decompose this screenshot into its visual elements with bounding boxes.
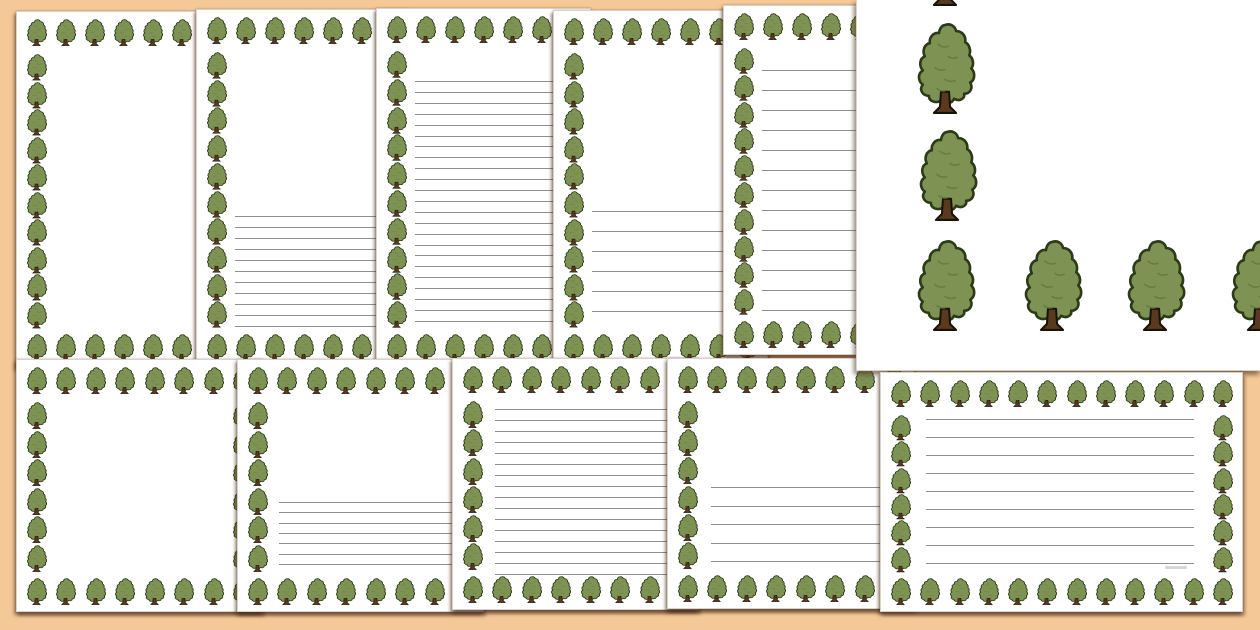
tree-icon bbox=[386, 246, 407, 274]
tree-icon bbox=[890, 441, 911, 467]
tree-icon bbox=[677, 366, 698, 394]
tree-icon bbox=[563, 81, 584, 109]
tree-icon bbox=[276, 578, 297, 606]
tree-icon bbox=[351, 334, 372, 362]
tree-icon bbox=[386, 218, 407, 246]
writing-line bbox=[279, 554, 463, 555]
writing-line bbox=[711, 524, 893, 525]
tree-icon bbox=[563, 246, 584, 274]
tree-icon bbox=[563, 301, 584, 329]
tree-icon bbox=[26, 192, 47, 220]
tree-icon bbox=[55, 334, 76, 362]
tree-icon bbox=[206, 301, 227, 329]
tree-icon bbox=[491, 366, 512, 394]
writing-line bbox=[711, 561, 893, 562]
tree-icon bbox=[322, 334, 343, 362]
tree-icon bbox=[521, 366, 542, 394]
tree-icon bbox=[1183, 578, 1204, 606]
tree-icon bbox=[563, 18, 584, 46]
tree-icon bbox=[55, 578, 76, 606]
writing-line bbox=[235, 326, 392, 327]
tree-icon bbox=[949, 380, 970, 408]
tree-icon bbox=[592, 18, 613, 46]
tree-icon bbox=[85, 578, 106, 606]
tree-icon bbox=[762, 13, 783, 41]
tree-icon bbox=[247, 431, 268, 459]
tree-icon bbox=[365, 578, 386, 606]
tree-icon bbox=[1212, 468, 1233, 494]
tree-icon bbox=[26, 19, 47, 47]
tree-icon bbox=[677, 514, 698, 542]
tree-icon bbox=[706, 366, 727, 394]
tree-icon bbox=[55, 367, 76, 395]
writing-line bbox=[279, 512, 463, 513]
tree-icon bbox=[1124, 578, 1145, 606]
writing-line bbox=[926, 419, 1194, 420]
tree-icon bbox=[677, 542, 698, 570]
tree-icon bbox=[1153, 380, 1174, 408]
tree-icon bbox=[386, 51, 407, 79]
writing-line bbox=[495, 475, 678, 476]
tree-icon bbox=[55, 19, 76, 47]
tree-icon bbox=[1212, 415, 1233, 441]
tree-icon bbox=[824, 366, 845, 394]
tree-icon bbox=[114, 367, 135, 395]
tree-icon bbox=[293, 17, 314, 45]
tree-icon bbox=[473, 16, 494, 44]
tree-icon bbox=[563, 53, 584, 81]
tree-icon bbox=[1212, 441, 1233, 467]
tree-icon bbox=[26, 247, 47, 275]
tree-icon bbox=[733, 236, 754, 263]
tree-icon bbox=[306, 578, 327, 606]
writing-line bbox=[415, 212, 572, 213]
writing-line bbox=[415, 168, 572, 169]
writing-line bbox=[415, 310, 572, 311]
tree-icon bbox=[114, 578, 135, 606]
writing-line bbox=[415, 190, 572, 191]
writing-line bbox=[415, 223, 572, 224]
tree-icon bbox=[1095, 380, 1116, 408]
tree-icon bbox=[550, 366, 571, 394]
border-left-tree-column bbox=[26, 54, 47, 329]
writing-line bbox=[235, 293, 392, 294]
tree-icon bbox=[580, 366, 601, 394]
tree-icon bbox=[424, 578, 445, 606]
tree-icon bbox=[462, 429, 483, 457]
border-left-tree-column bbox=[26, 402, 47, 573]
tree-icon bbox=[679, 18, 700, 46]
tree-icon bbox=[235, 334, 256, 362]
tree-icon bbox=[733, 102, 754, 129]
tree-icon bbox=[26, 334, 47, 362]
tree-icon bbox=[142, 334, 163, 362]
tree-icon bbox=[733, 48, 754, 75]
tree-icon bbox=[173, 367, 194, 395]
tree-icon bbox=[890, 520, 911, 546]
tree-icon bbox=[142, 19, 163, 47]
tree-icon bbox=[1212, 520, 1233, 546]
tree-icon bbox=[1036, 578, 1057, 606]
tree-icon bbox=[890, 415, 911, 441]
tree-icon bbox=[206, 274, 227, 302]
tree-icon bbox=[1066, 380, 1087, 408]
writing-line bbox=[415, 299, 572, 300]
writing-line bbox=[415, 81, 572, 82]
tree-icon bbox=[203, 578, 224, 606]
tree-icon bbox=[890, 380, 911, 408]
tree-icon bbox=[677, 429, 698, 457]
tree-icon bbox=[26, 109, 47, 137]
tree-icon bbox=[1212, 547, 1233, 573]
tree-icon bbox=[26, 302, 47, 330]
tree-icon bbox=[949, 578, 970, 606]
writing-line bbox=[711, 506, 893, 507]
tree-icon bbox=[386, 273, 407, 301]
tree-icon bbox=[276, 367, 297, 395]
tree-icon bbox=[247, 459, 268, 487]
tree-icon bbox=[462, 458, 483, 486]
border-right-tree-column bbox=[1212, 415, 1233, 573]
border-left-tree-column bbox=[462, 401, 483, 571]
border-top-tree-row bbox=[26, 19, 221, 47]
writing-line bbox=[235, 249, 392, 250]
tree-icon bbox=[206, 334, 227, 362]
tree-icon bbox=[394, 578, 415, 606]
tree-icon bbox=[1183, 380, 1204, 408]
tree-icon bbox=[235, 17, 256, 45]
tree-icon bbox=[415, 16, 436, 44]
tree-icon bbox=[791, 13, 812, 41]
tree-icon bbox=[1066, 578, 1087, 606]
tree-icon bbox=[914, 0, 976, 10]
tree-icon bbox=[386, 190, 407, 218]
border-top-tree-row bbox=[462, 366, 689, 394]
writing-line bbox=[495, 541, 678, 542]
border-left-tree-column bbox=[386, 51, 407, 329]
tree-icon bbox=[85, 367, 106, 395]
tree-icon bbox=[247, 488, 268, 516]
writing-line bbox=[235, 315, 392, 316]
tree-icon bbox=[26, 578, 47, 606]
writing-line bbox=[415, 92, 572, 93]
writing-line bbox=[495, 453, 678, 454]
page-card-bottom-1-blank bbox=[16, 359, 263, 612]
writing-line bbox=[711, 487, 893, 488]
tree-icon bbox=[293, 334, 314, 362]
writing-line bbox=[415, 103, 572, 104]
writing-line bbox=[926, 545, 1194, 546]
writing-lines bbox=[279, 502, 463, 574]
tree-icon bbox=[733, 262, 754, 289]
writing-line bbox=[279, 543, 463, 544]
border-bottom-tree-row bbox=[890, 578, 1233, 606]
tree-icon bbox=[206, 107, 227, 135]
tree-icon bbox=[206, 163, 227, 191]
page-card-bottom-4-half-lined-wide bbox=[667, 358, 914, 609]
writing-line bbox=[415, 157, 572, 158]
border-left-tree-column bbox=[677, 401, 698, 570]
tree-icon bbox=[335, 578, 356, 606]
large-tree-icon-wrap bbox=[1124, 239, 1186, 335]
tree-icon bbox=[26, 54, 47, 82]
tree-icon bbox=[171, 19, 192, 47]
tree-icon bbox=[424, 367, 445, 395]
tree-icon bbox=[394, 367, 415, 395]
page-card-bottom-2-half-lined-narrow bbox=[237, 359, 484, 612]
writing-line bbox=[711, 543, 893, 544]
tree-icon bbox=[203, 367, 224, 395]
writing-lines bbox=[235, 216, 392, 337]
border-bottom-tree-row bbox=[26, 334, 221, 362]
border-bottom-tree-row bbox=[206, 334, 401, 362]
tree-icon bbox=[639, 366, 660, 394]
tree-icon bbox=[890, 468, 911, 494]
tree-icon bbox=[890, 547, 911, 573]
writing-line bbox=[495, 530, 678, 531]
tree-icon bbox=[733, 209, 754, 236]
tree-icon bbox=[765, 366, 786, 394]
tree-icon bbox=[677, 575, 698, 603]
tree-icon bbox=[1212, 578, 1233, 606]
tree-icon bbox=[351, 17, 372, 45]
writing-line bbox=[279, 564, 463, 565]
tree-icon bbox=[563, 191, 584, 219]
tree-icon bbox=[1212, 494, 1233, 520]
writing-lines bbox=[926, 419, 1194, 581]
tree-icon bbox=[335, 367, 356, 395]
writing-line bbox=[235, 260, 392, 261]
tree-icon bbox=[1036, 380, 1057, 408]
border-left-tree-column bbox=[733, 48, 754, 316]
tree-icon bbox=[733, 289, 754, 316]
page-card-bottom-5-fully-lined-wide bbox=[880, 372, 1243, 612]
tree-icon bbox=[84, 19, 105, 47]
tree-icon bbox=[444, 16, 465, 44]
tree-icon bbox=[26, 137, 47, 165]
writing-line bbox=[415, 136, 572, 137]
tree-icon bbox=[677, 401, 698, 429]
tree-icon bbox=[247, 367, 268, 395]
tree-icon bbox=[144, 367, 165, 395]
writing-line bbox=[279, 533, 463, 534]
writing-line bbox=[495, 431, 678, 432]
tree-icon bbox=[914, 239, 976, 335]
tree-icon bbox=[386, 79, 407, 107]
tree-icon bbox=[386, 107, 407, 135]
tree-icon bbox=[1007, 578, 1028, 606]
tree-icon bbox=[462, 486, 483, 514]
tree-icon bbox=[795, 366, 816, 394]
writing-line bbox=[926, 491, 1194, 492]
writing-line bbox=[235, 227, 392, 228]
tree-icon bbox=[462, 366, 483, 394]
tree-icon bbox=[677, 486, 698, 514]
tree-icon bbox=[386, 162, 407, 190]
tree-icon bbox=[919, 380, 940, 408]
tree-icon bbox=[531, 16, 552, 44]
writing-line bbox=[415, 255, 572, 256]
tree-icon bbox=[322, 17, 343, 45]
large-tree-icon-wrap bbox=[1228, 239, 1260, 335]
writing-line bbox=[495, 486, 678, 487]
writing-line bbox=[415, 234, 572, 235]
large-tree-icon-wrap bbox=[914, 239, 976, 335]
writing-line bbox=[415, 201, 572, 202]
tree-icon bbox=[1124, 380, 1145, 408]
tree-icon bbox=[919, 578, 940, 606]
writing-line bbox=[415, 288, 572, 289]
tree-icon bbox=[386, 334, 407, 362]
writing-line bbox=[235, 282, 392, 283]
faint-watermark bbox=[1165, 566, 1187, 569]
tree-icon bbox=[916, 129, 978, 225]
tree-icon bbox=[1124, 239, 1186, 335]
writing-line bbox=[926, 563, 1194, 564]
tree-icon bbox=[563, 274, 584, 302]
tree-icon bbox=[113, 19, 134, 47]
writing-line bbox=[279, 502, 463, 503]
tree-icon bbox=[386, 16, 407, 44]
writing-line bbox=[495, 420, 678, 421]
writing-line bbox=[415, 266, 572, 267]
tree-icon bbox=[563, 108, 584, 136]
border-closeup-panel bbox=[856, 0, 1260, 371]
writing-line bbox=[415, 277, 572, 278]
writing-line bbox=[495, 497, 678, 498]
tree-icon bbox=[247, 516, 268, 544]
tree-icon bbox=[890, 494, 911, 520]
tree-icon bbox=[26, 367, 47, 395]
writing-line bbox=[415, 125, 572, 126]
tree-icon bbox=[247, 545, 268, 573]
tree-icon bbox=[247, 578, 268, 606]
writing-line bbox=[415, 245, 572, 246]
tree-icon bbox=[173, 578, 194, 606]
border-left-tree-column bbox=[563, 53, 584, 329]
border-top-tree-row bbox=[206, 17, 401, 45]
writing-line bbox=[235, 304, 392, 305]
tree-icon bbox=[26, 545, 47, 573]
tree-icon bbox=[890, 578, 911, 606]
tree-icon bbox=[26, 516, 47, 544]
writing-line bbox=[926, 527, 1194, 528]
writing-line bbox=[495, 552, 678, 553]
large-tree-icon-wrap bbox=[1021, 239, 1083, 335]
tree-icon bbox=[26, 274, 47, 302]
tree-icon bbox=[365, 367, 386, 395]
large-tree-icon-wrap bbox=[916, 129, 978, 225]
tree-icon bbox=[144, 578, 165, 606]
tree-icon bbox=[733, 75, 754, 102]
tree-icon bbox=[84, 334, 105, 362]
writing-lines bbox=[495, 409, 678, 585]
tree-icon bbox=[415, 334, 436, 362]
border-top-tree-row bbox=[890, 380, 1233, 408]
writing-line bbox=[235, 271, 392, 272]
tree-icon bbox=[733, 321, 754, 349]
page-card-bottom-3-fully-lined-narrow bbox=[452, 358, 699, 610]
tree-icon bbox=[677, 457, 698, 485]
writing-line bbox=[495, 574, 678, 575]
tree-icon bbox=[1212, 380, 1233, 408]
writing-line bbox=[415, 321, 572, 322]
tree-icon bbox=[26, 164, 47, 192]
writing-line bbox=[495, 442, 678, 443]
writing-line bbox=[415, 146, 572, 147]
tree-icon bbox=[264, 17, 285, 45]
tree-icon bbox=[26, 82, 47, 110]
tree-icon bbox=[733, 182, 754, 209]
tree-icon bbox=[650, 18, 671, 46]
writing-line bbox=[495, 409, 678, 410]
writing-line bbox=[926, 473, 1194, 474]
border-left-tree-column bbox=[206, 52, 227, 329]
tree-icon bbox=[26, 402, 47, 430]
tree-icon bbox=[609, 366, 630, 394]
large-tree-icon-wrap bbox=[914, 22, 976, 118]
tree-icon bbox=[462, 515, 483, 543]
tree-icon bbox=[1228, 239, 1260, 335]
writing-line bbox=[495, 464, 678, 465]
tree-icon bbox=[247, 402, 268, 430]
tree-icon bbox=[1021, 239, 1083, 335]
tree-icon bbox=[386, 301, 407, 329]
writing-line bbox=[926, 437, 1194, 438]
writing-line bbox=[926, 455, 1194, 456]
tree-icon bbox=[171, 334, 192, 362]
tree-icon bbox=[563, 163, 584, 191]
writing-line bbox=[235, 238, 392, 239]
tree-icon bbox=[733, 128, 754, 155]
tree-icon bbox=[733, 155, 754, 182]
border-top-tree-row bbox=[26, 367, 253, 395]
tree-icon bbox=[206, 135, 227, 163]
page-borders-preview bbox=[0, 0, 1260, 630]
writing-line bbox=[415, 114, 572, 115]
tree-icon bbox=[26, 488, 47, 516]
tree-icon bbox=[736, 366, 757, 394]
writing-line bbox=[495, 519, 678, 520]
tree-icon bbox=[978, 380, 999, 408]
tree-icon bbox=[206, 218, 227, 246]
tree-icon bbox=[563, 219, 584, 247]
tree-icon bbox=[1095, 578, 1116, 606]
tree-icon bbox=[206, 17, 227, 45]
tree-icon bbox=[462, 543, 483, 571]
writing-line bbox=[495, 508, 678, 509]
border-top-tree-row bbox=[386, 16, 581, 44]
tree-icon bbox=[26, 431, 47, 459]
tree-icon bbox=[563, 136, 584, 164]
tree-icon bbox=[462, 576, 483, 604]
border-top-tree-row bbox=[247, 367, 474, 395]
border-left-tree-column bbox=[247, 402, 268, 573]
tree-icon bbox=[113, 334, 134, 362]
writing-line bbox=[926, 509, 1194, 510]
tree-icon bbox=[206, 80, 227, 108]
tree-icon bbox=[206, 52, 227, 80]
border-bottom-tree-row bbox=[247, 578, 474, 606]
tree-icon bbox=[914, 22, 976, 118]
tree-icon bbox=[264, 334, 285, 362]
large-tree-icon-wrap bbox=[914, 0, 976, 10]
tree-icon bbox=[206, 246, 227, 274]
tree-icon bbox=[502, 16, 523, 44]
tree-icon bbox=[820, 13, 841, 41]
tree-icon bbox=[306, 367, 327, 395]
writing-lines bbox=[415, 81, 572, 332]
